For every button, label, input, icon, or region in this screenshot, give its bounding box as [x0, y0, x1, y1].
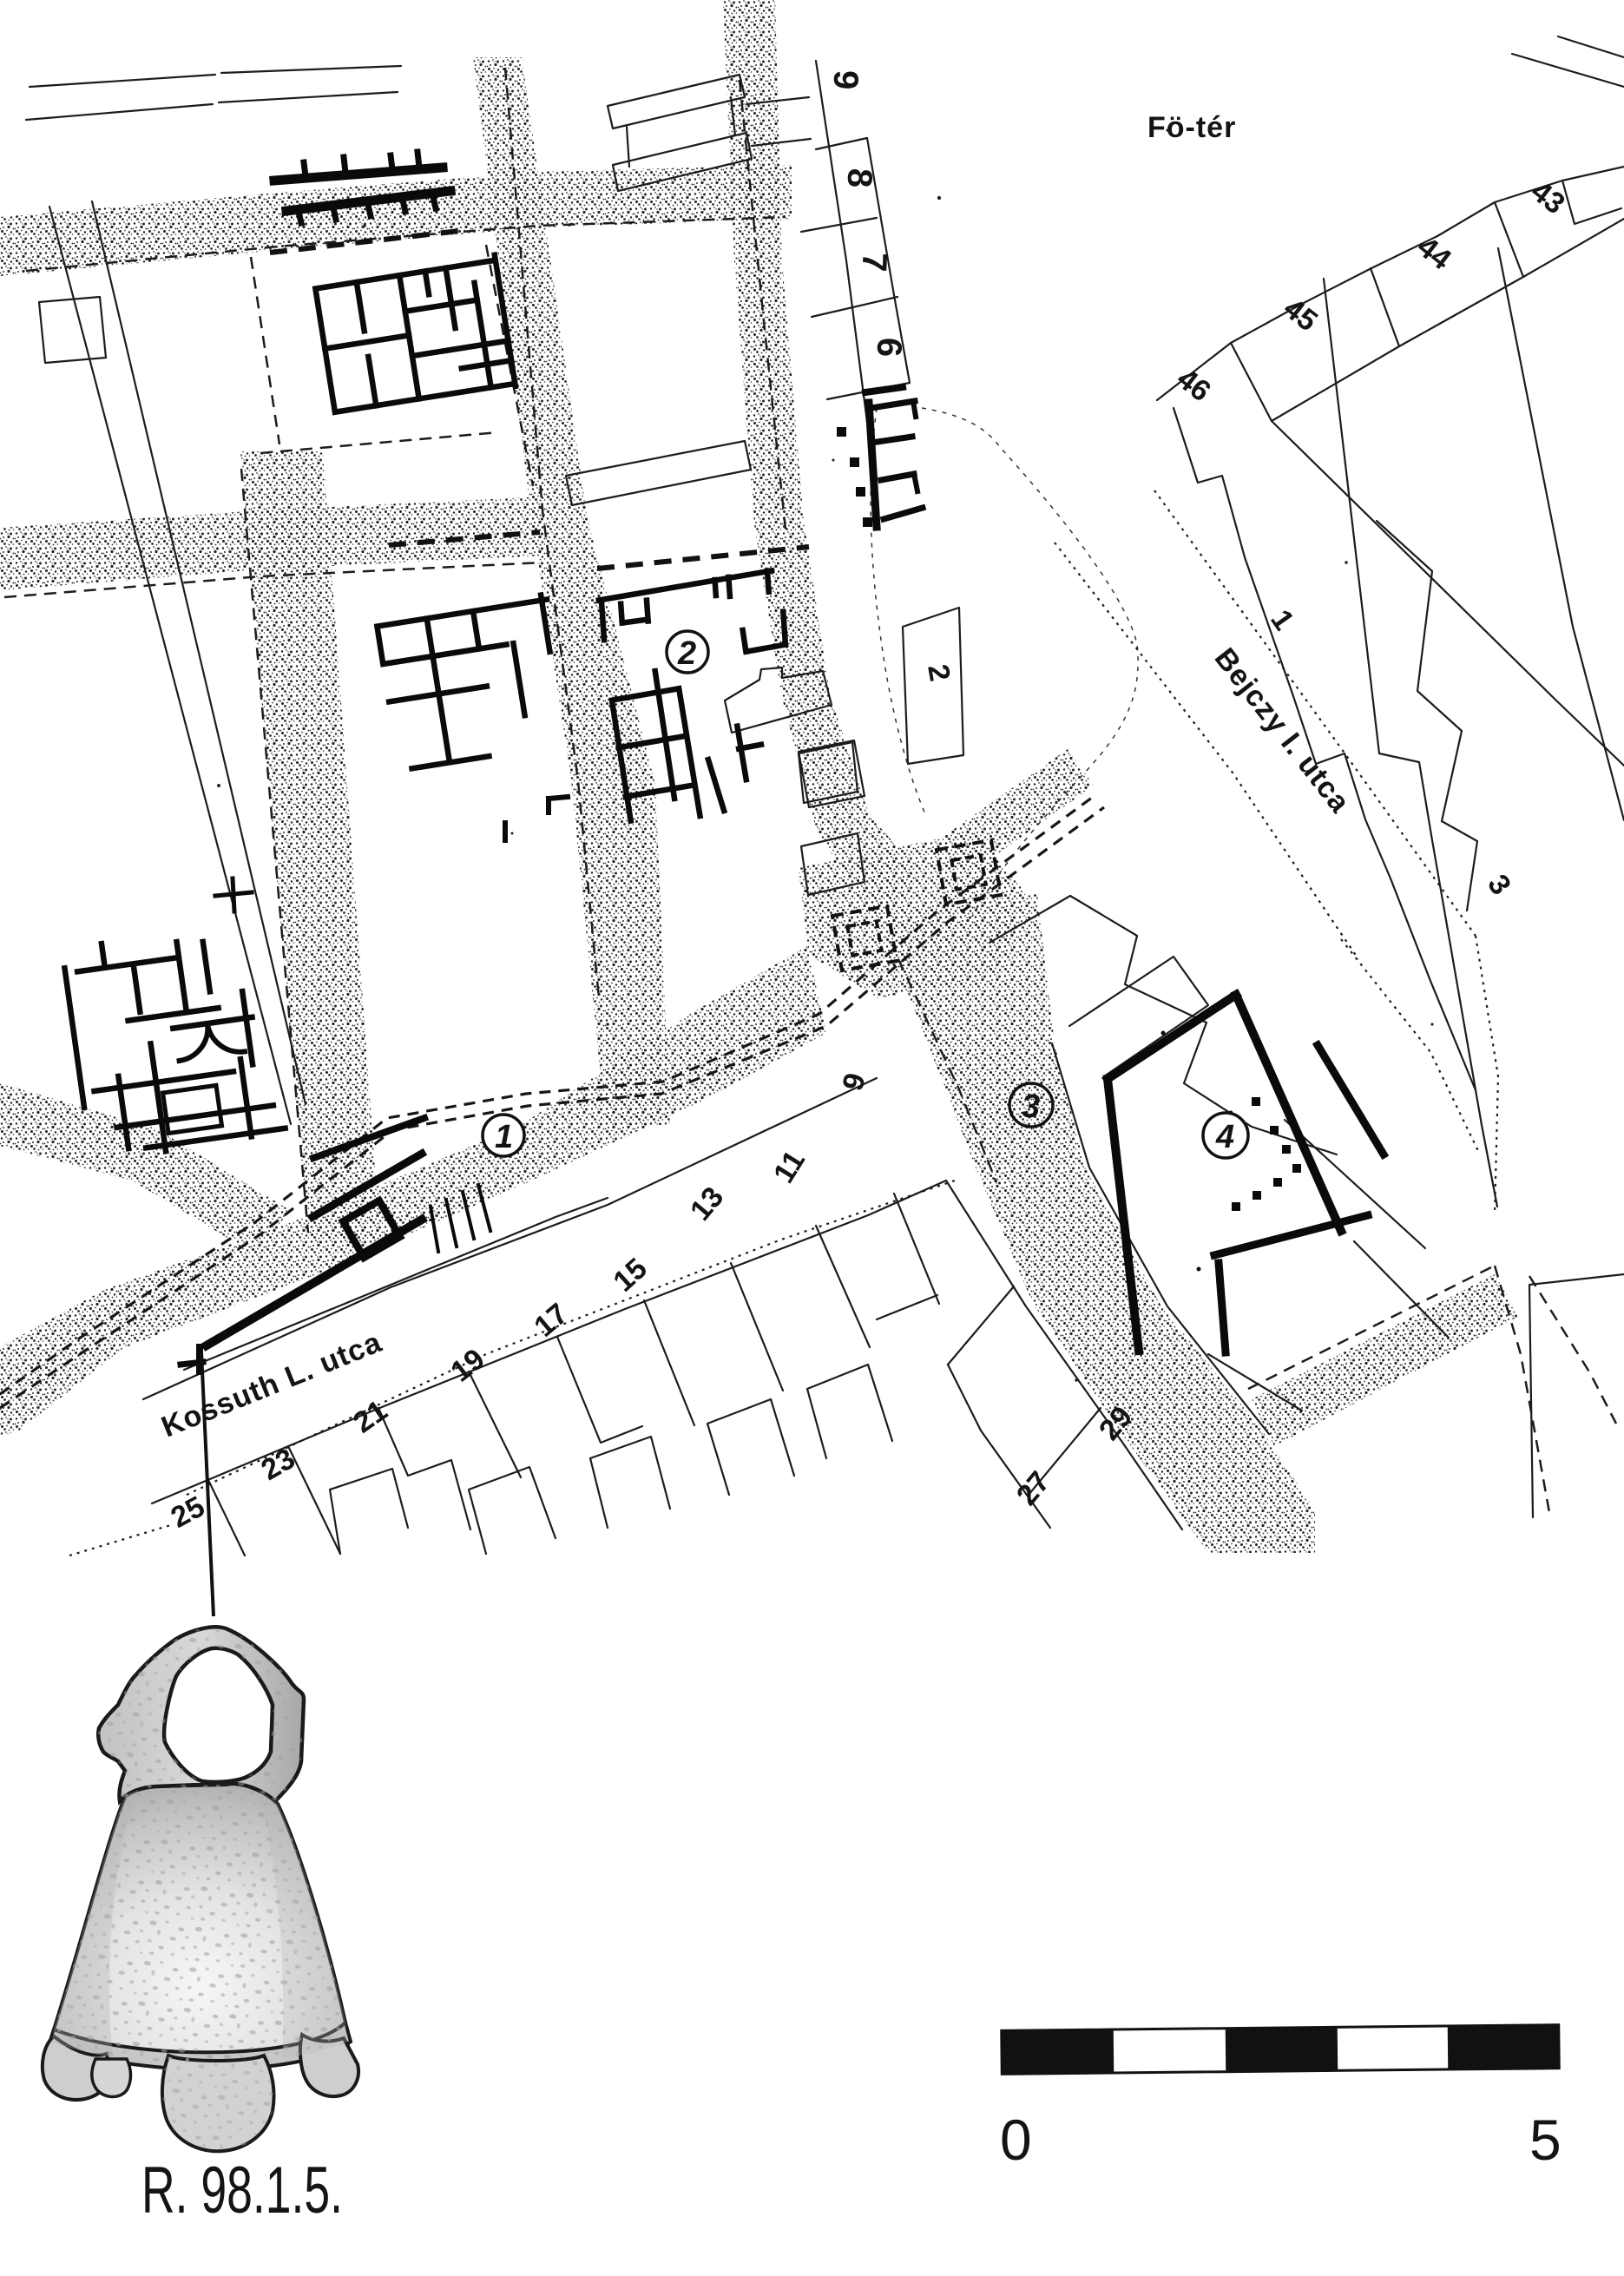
svg-text:8: 8 — [840, 168, 879, 188]
svg-text:6: 6 — [870, 337, 909, 358]
svg-text:5: 5 — [1529, 2108, 1562, 2172]
svg-text:1: 1 — [495, 1119, 513, 1155]
svg-text:9: 9 — [826, 69, 865, 90]
svg-text:0: 0 — [1000, 2108, 1032, 2172]
svg-text:7: 7 — [855, 252, 894, 273]
svg-text:Fö-tér: Fö-tér — [1147, 111, 1236, 144]
svg-text:R. 98.1.5.: R. 98.1.5. — [141, 2154, 343, 2227]
svg-text:4: 4 — [1215, 1119, 1234, 1155]
svg-text:3: 3 — [1022, 1089, 1040, 1125]
svg-text:2: 2 — [677, 635, 696, 672]
